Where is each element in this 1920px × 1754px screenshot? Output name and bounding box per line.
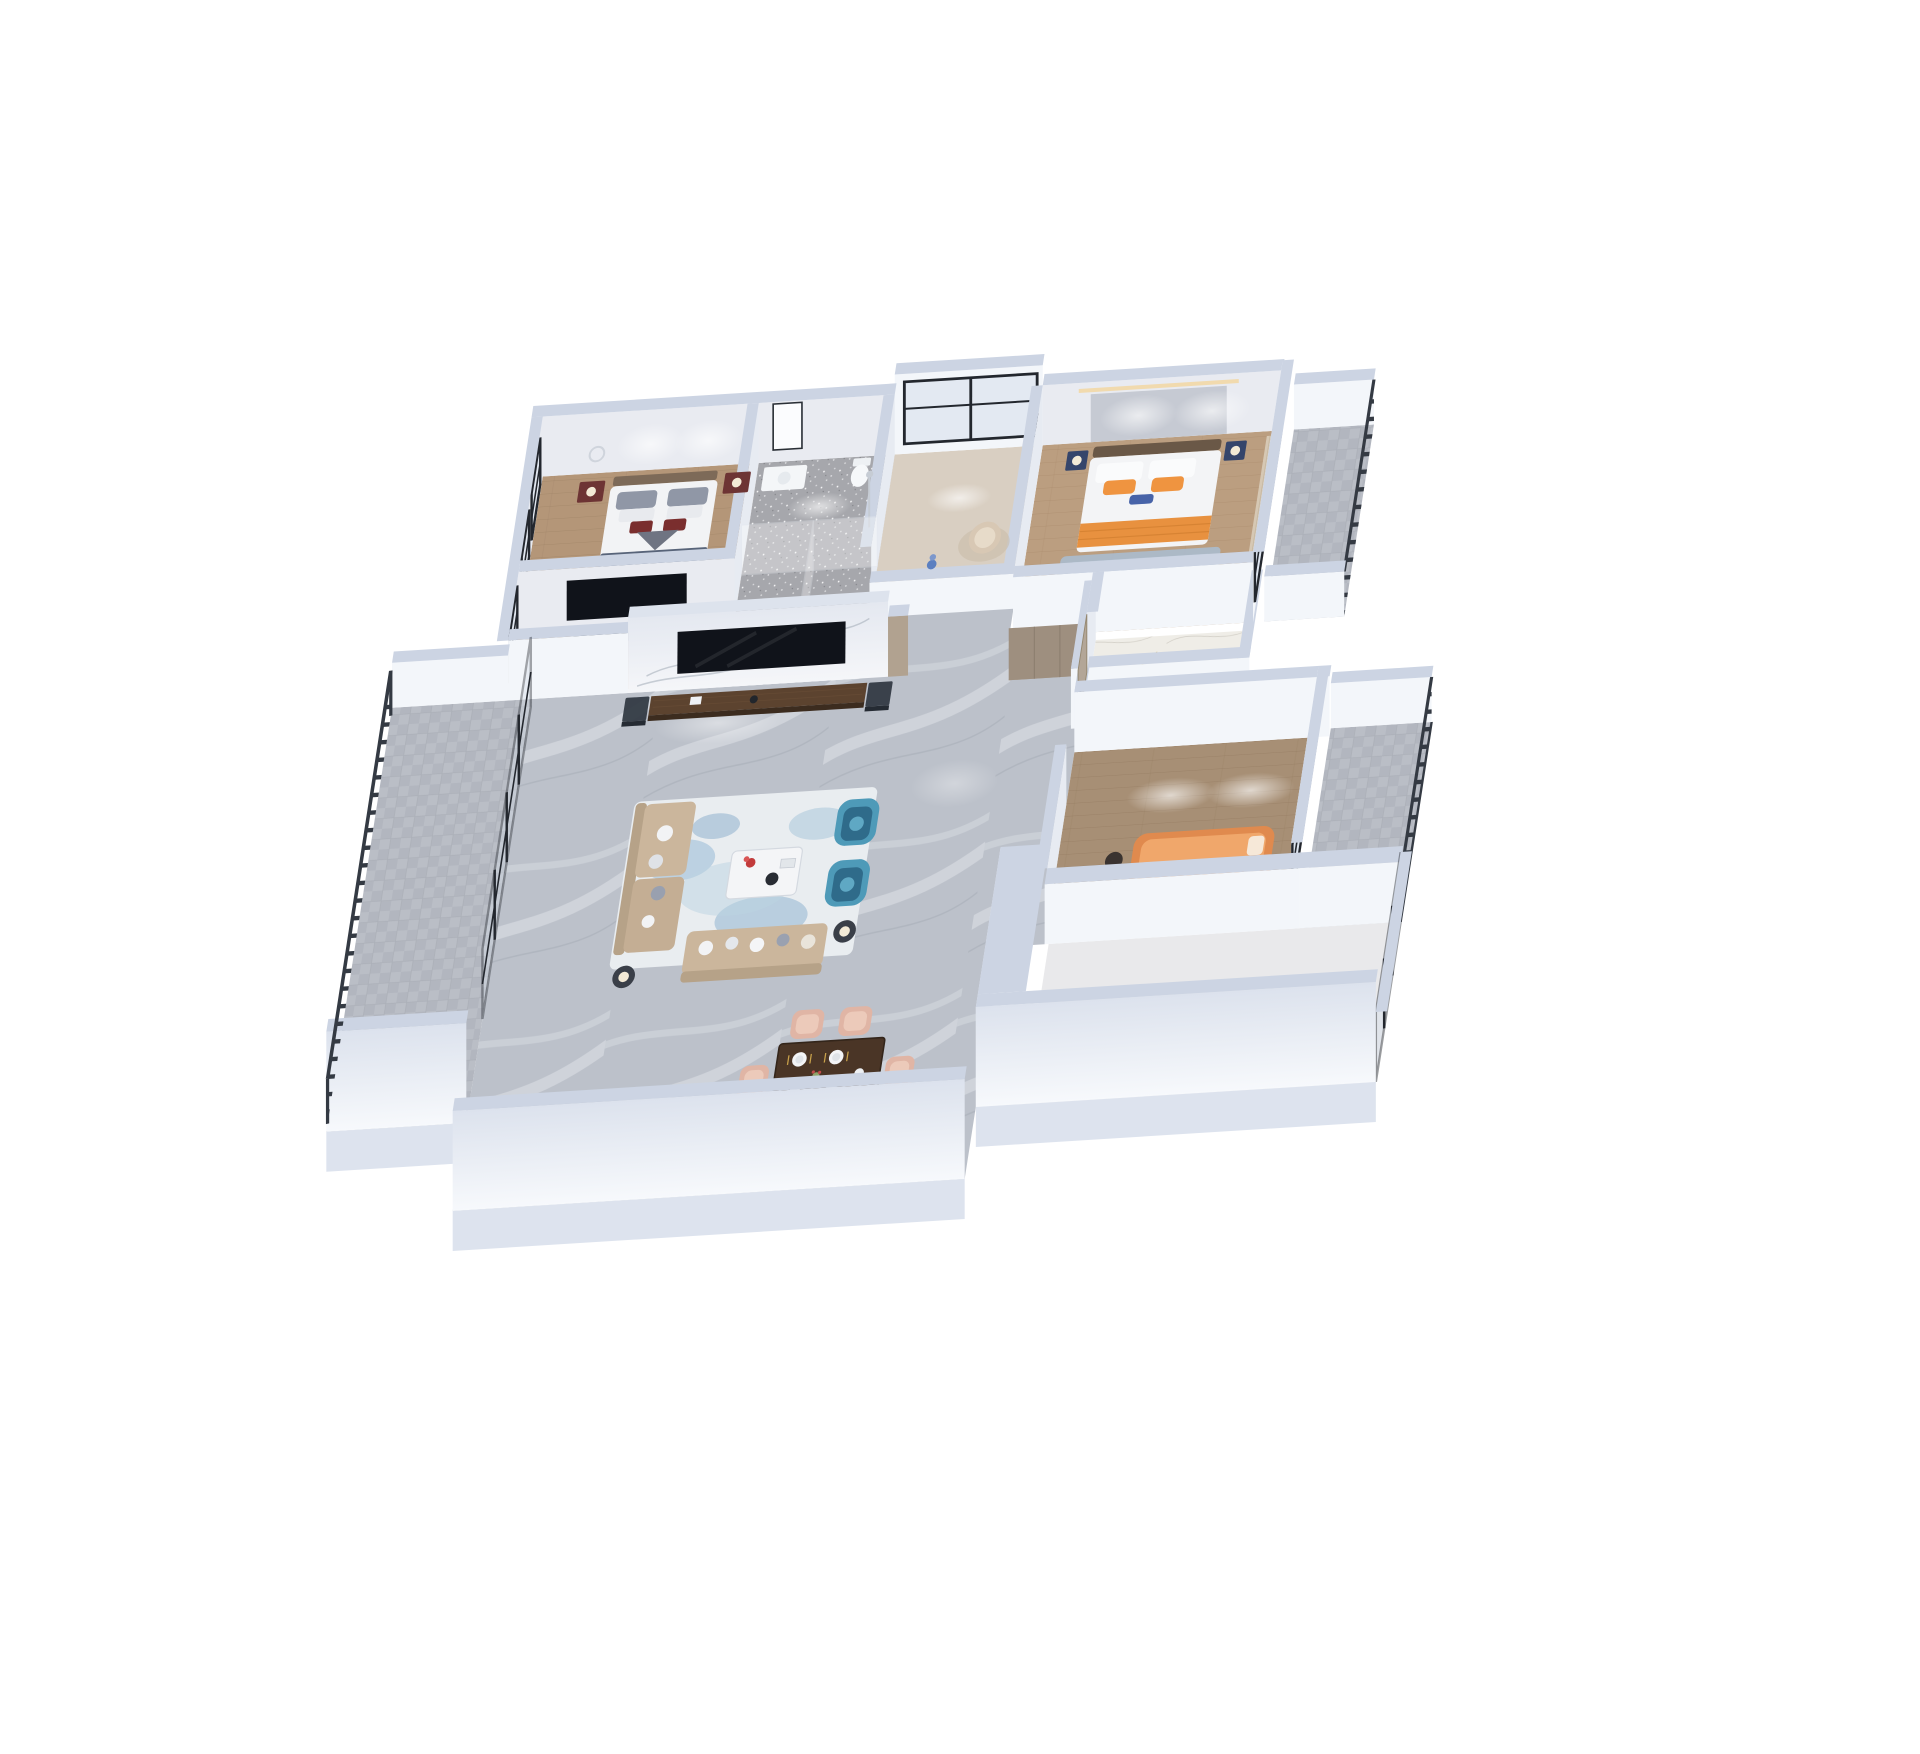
balcony-west-north-wall-face	[385, 655, 515, 708]
coffee-table-book	[780, 858, 796, 868]
balcony-ne-south-wall-face	[1257, 571, 1351, 622]
display-cabinet-left	[622, 696, 650, 722]
guest-accent-pillow	[663, 518, 687, 531]
apartment-3d-floor-plan	[0, 0, 1920, 1754]
nook-south-wall-face	[499, 632, 638, 701]
display-cabinet-right	[865, 681, 893, 707]
guest-pillow	[618, 508, 655, 523]
guest-pillow	[666, 505, 703, 520]
bath-mirror	[766, 402, 809, 451]
balcony-east-north-wall-face	[1324, 677, 1439, 729]
taupe-column-cap	[888, 604, 910, 616]
guest-pillow	[615, 490, 658, 510]
master-pillow	[1095, 461, 1144, 483]
master-orange-pillow	[1102, 479, 1136, 495]
master-blue-pillow	[1129, 494, 1154, 505]
master-orange-pillow	[1150, 476, 1184, 492]
floor-plan-render-page	[0, 0, 1920, 1754]
guest-pillow	[666, 487, 709, 507]
coffee-table	[725, 847, 803, 899]
master-pillow	[1148, 458, 1197, 480]
plan-scene	[291, 326, 1500, 1261]
console-deco	[690, 696, 702, 705]
